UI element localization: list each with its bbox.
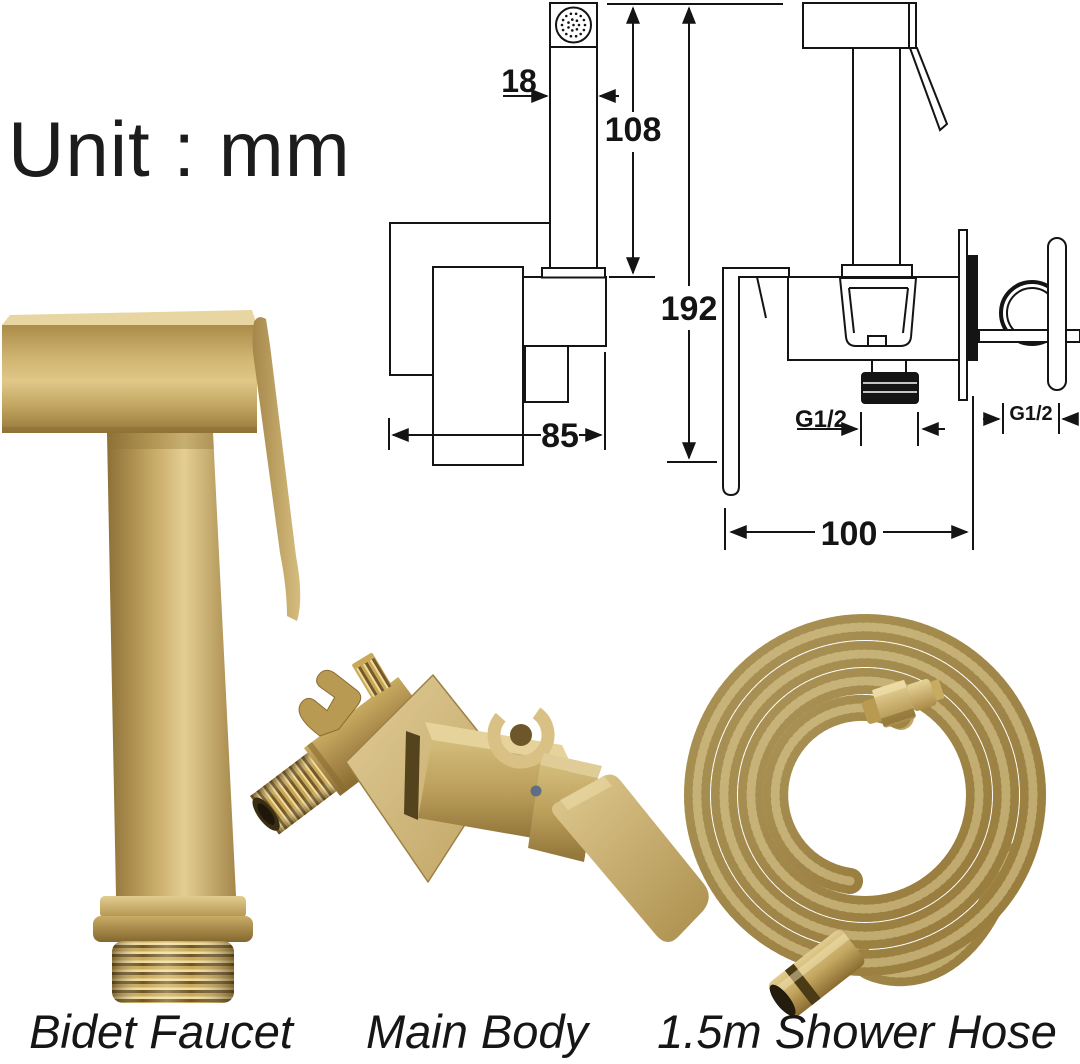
product-label-bidet-faucet: Bidet Faucet <box>29 1004 293 1059</box>
sprayer-shaft-side <box>853 48 900 265</box>
sprayer-flange-side <box>842 265 912 277</box>
faucet-shaft <box>107 433 236 896</box>
sprayer-flange-front <box>542 268 605 278</box>
shower-hose-photo <box>697 627 1033 1022</box>
outlet-neck <box>872 360 906 373</box>
trigger-side <box>910 48 947 130</box>
cross-handle-vbar <box>1048 238 1066 390</box>
wall-plate-core <box>967 256 977 360</box>
dim-head-width-label: 18 <box>501 63 537 99</box>
product-dimension-sheet: Unit : mm <box>0 0 1080 1064</box>
outlet-thread <box>862 373 918 403</box>
valve-lower-front <box>525 346 568 402</box>
body-tube-slot <box>404 731 420 820</box>
faucet-flange-top <box>100 896 246 918</box>
side-view-drawing: G1/2 G1/2 100 <box>723 3 1080 553</box>
wall-plate-side <box>959 230 967 400</box>
dim-handle-thread-label: G1/2 <box>1009 403 1052 425</box>
diagram-stage: 18 108 192 85 <box>0 0 1080 1064</box>
sprayer-shaft-front <box>550 47 597 268</box>
faucet-trigger <box>253 317 301 621</box>
handle-side <box>723 268 789 495</box>
valve-body-front <box>523 277 606 346</box>
dim-total-height-label: 192 <box>661 290 718 328</box>
dim-sprayer-height-label: 108 <box>605 111 662 149</box>
hose-coils <box>697 627 1033 963</box>
main-body-photo <box>212 637 709 942</box>
bidet-faucet-photo <box>2 310 300 1003</box>
faucet-head-top-face <box>2 310 257 325</box>
cup-notch <box>868 336 886 346</box>
dim-outlet-thread-label: G1/2 <box>795 406 847 433</box>
product-label-shower-hose: 1.5m Shower Hose <box>657 1004 1057 1059</box>
faucet-flange-rim <box>93 916 253 942</box>
product-label-main-body: Main Body <box>366 1004 588 1059</box>
faucet-head <box>2 325 257 433</box>
sprayer-head-side <box>803 3 916 48</box>
body-indicator-dot <box>531 786 542 797</box>
dim-depth-label: 100 <box>821 515 878 553</box>
dim-body-width-label: 85 <box>541 417 579 455</box>
